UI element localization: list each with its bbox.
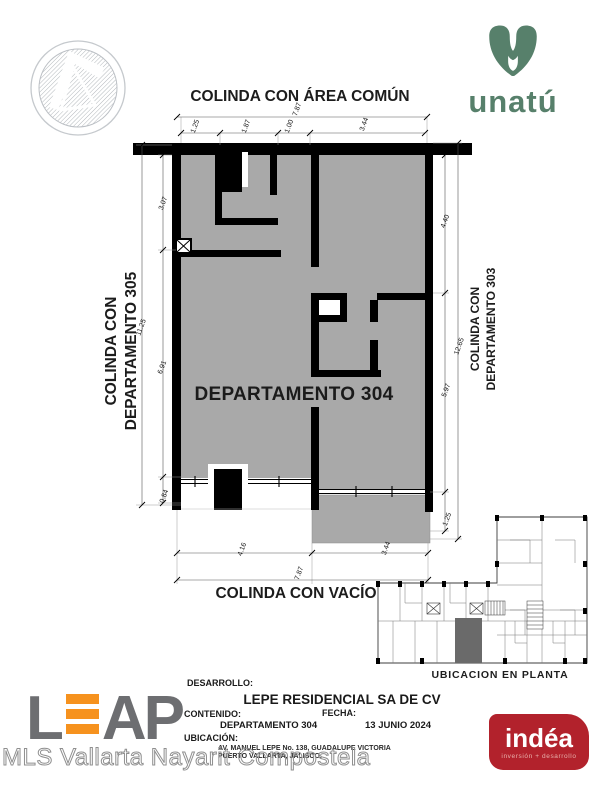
- plan-sheet: 7.87 1.25 1.87 1.00 3.44 3.07 11.25 6.91…: [0, 0, 612, 792]
- dim-left-2: 6.91: [157, 360, 168, 375]
- dim-top-3: 1.00: [284, 119, 295, 134]
- adjacency-label-left: COLINDA CON DEPARTAMENTO 305: [102, 251, 148, 451]
- adjacency-label-right-line2: DEPARTAMENTO 303: [484, 254, 500, 404]
- adjacency-label-left-line2: DEPARTAMENTO 305: [122, 251, 142, 451]
- dim-top-1: 1.25: [190, 119, 201, 134]
- room-label: DEPARTAMENTO 304: [144, 384, 444, 406]
- dim-left-1: 3.07: [158, 196, 169, 211]
- ubicacion-label: UBICACIÓN:: [184, 733, 238, 743]
- dim-bottom-1: 4.16: [237, 542, 248, 557]
- dim-right-outer: 12.65: [453, 337, 466, 356]
- adjacency-label-left-line1: COLINDA CON: [102, 251, 122, 451]
- adjacency-label-right: COLINDA CON DEPARTAMENTO 303: [468, 254, 504, 404]
- shaft-icon: [176, 239, 191, 253]
- desarrollo-value: LEPE RESIDENCIAL SA DE CV: [242, 692, 442, 707]
- mls-watermark: MLS Vallarta Nayarit Compostela: [2, 744, 371, 772]
- dim-right-3: 1.25: [442, 512, 453, 527]
- dim-top-4: 3.44: [359, 117, 370, 132]
- key-plan-caption: UBICACION EN PLANTA: [430, 669, 570, 681]
- leap-letters-ap: AP: [102, 688, 182, 750]
- dim-left-3: 0.84: [159, 489, 170, 504]
- dim-bottom-overall: 7.87: [294, 566, 305, 581]
- leap-e-bars-icon: [61, 688, 102, 734]
- contenido-label: CONTENIDO:: [184, 709, 241, 719]
- leap-logo: L AP: [26, 688, 182, 750]
- highlighted-unit: [455, 618, 482, 663]
- unatu-logo: unatú: [448, 22, 578, 120]
- indea-tagline: inversión + desarrollo: [501, 753, 576, 760]
- adjacency-label-bottom: COLINDA CON VACÍO: [146, 584, 446, 604]
- indea-logo: indéa inversión + desarrollo: [489, 714, 589, 770]
- balcony-area: [312, 495, 430, 543]
- adjacency-label-right-line1: COLINDA CON: [468, 254, 484, 404]
- architect-seal-icon: [31, 41, 125, 135]
- fecha-value: 13 JUNIO 2024: [365, 720, 431, 731]
- dim-right-1: 4.40: [440, 214, 451, 229]
- adjacency-label-top: COLINDA CON ÁREA COMÚN: [140, 87, 460, 107]
- indea-wordmark: indéa: [505, 725, 573, 751]
- dim-top-2: 1.87: [241, 119, 252, 134]
- fecha-label: FECHA:: [322, 708, 356, 718]
- door: [208, 464, 248, 510]
- unatu-wordmark: unatú: [448, 84, 578, 120]
- unatu-icon: [486, 22, 540, 82]
- contenido-value: DEPARTAMENTO 304: [220, 720, 317, 731]
- leap-letter-l: L: [26, 688, 61, 750]
- desarrollo-label: DESARROLLO:: [187, 678, 253, 688]
